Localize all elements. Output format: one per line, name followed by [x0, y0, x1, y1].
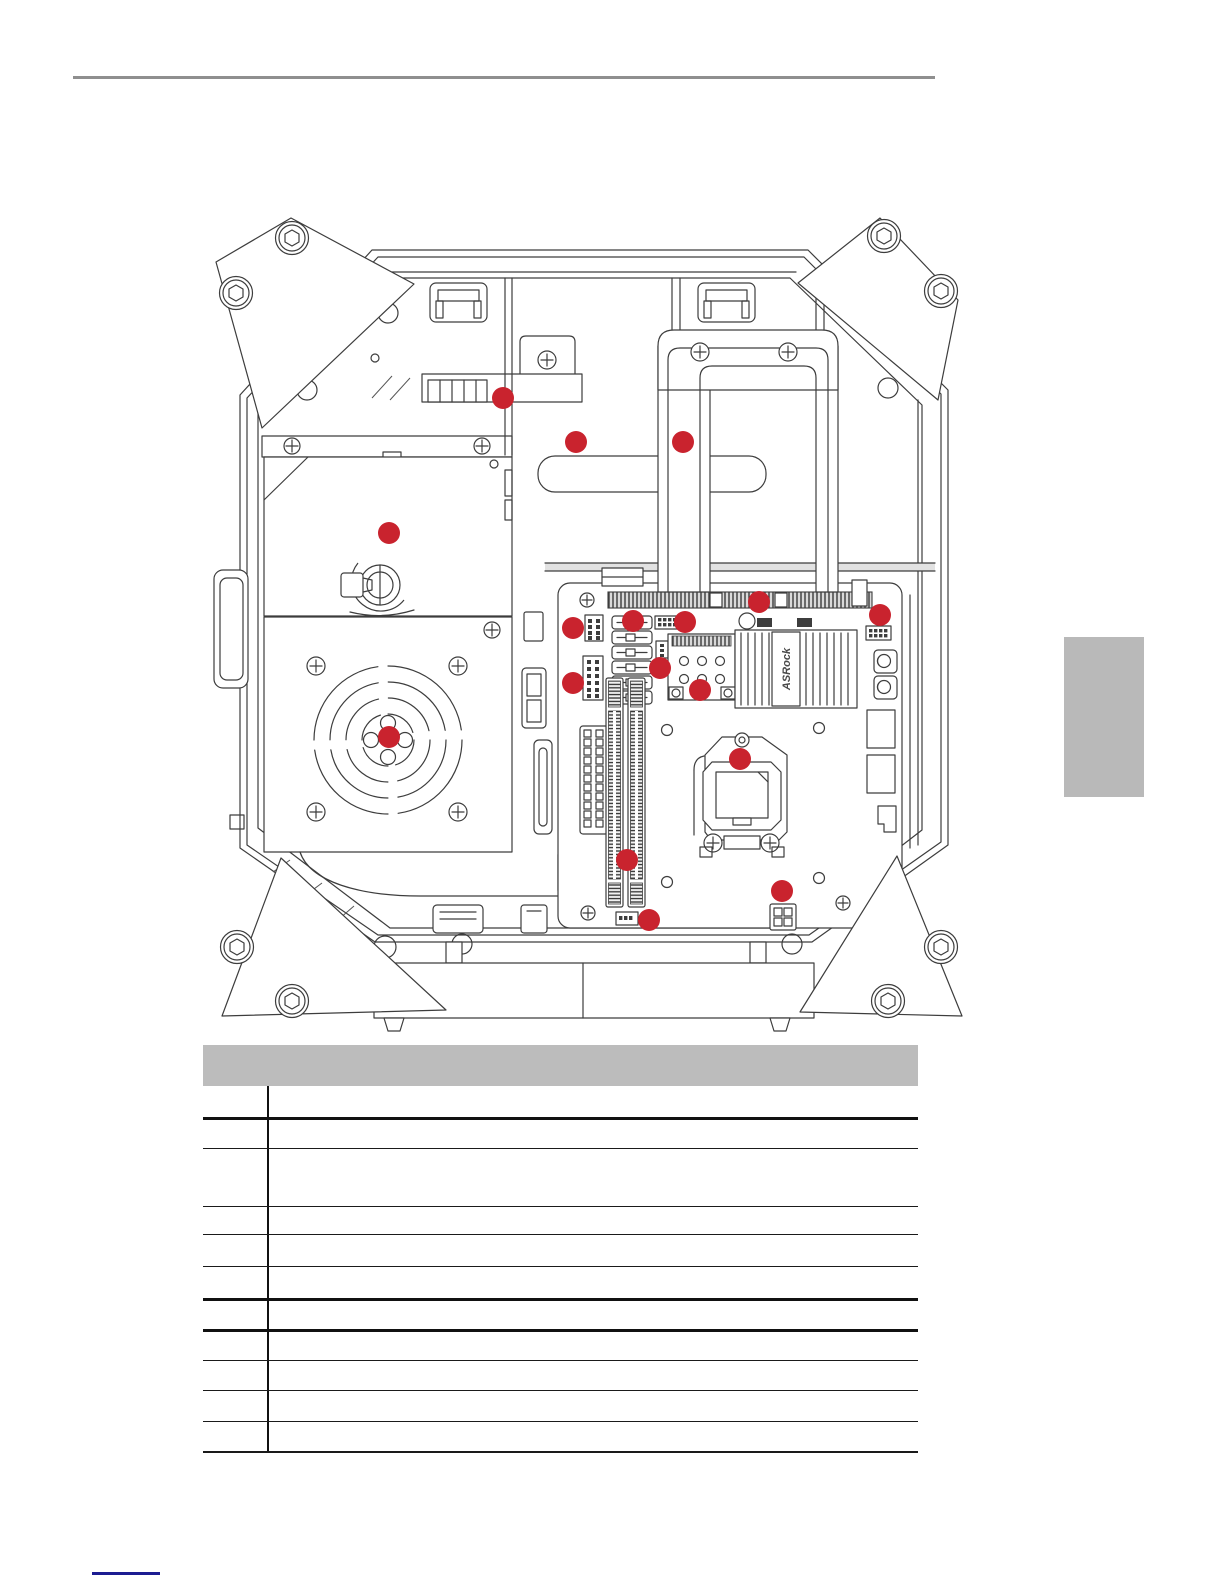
callout-dot: [674, 611, 696, 633]
row-description: [269, 1332, 918, 1360]
callout-dot: [378, 726, 400, 748]
component-table: [203, 1045, 918, 1453]
callout-dot: [562, 672, 584, 694]
table-row: [203, 1120, 918, 1149]
row-description: [269, 1149, 918, 1206]
manual-page: ASRock: [0, 0, 1224, 1584]
usb-block: [867, 710, 895, 748]
table-row: [203, 1207, 918, 1235]
row-number: [203, 1391, 269, 1421]
row-number: [203, 1120, 269, 1148]
row-number: [203, 1207, 269, 1234]
row-description: [269, 1086, 918, 1117]
small-header: [656, 641, 668, 658]
callout-dot: [869, 604, 891, 626]
atx12v-connector: [770, 904, 796, 930]
row-number: [203, 1422, 269, 1451]
bay-brackets: [522, 612, 552, 834]
fan-header: [616, 912, 638, 925]
row-number: [203, 1149, 269, 1206]
bottom-clips: [433, 905, 547, 933]
table-row: [203, 1086, 918, 1120]
row-description: [269, 1207, 918, 1234]
table-row: [203, 1391, 918, 1422]
side-latch-ear: [214, 570, 248, 829]
row-description: [269, 1120, 918, 1148]
chipset-heatsink: ASRock: [735, 630, 857, 708]
row-number: [203, 1267, 269, 1298]
heatsink-brand-text: ASRock: [781, 647, 793, 691]
callout-dot: [565, 431, 587, 453]
base-stand: [374, 942, 814, 1031]
row-number: [203, 1086, 269, 1117]
chassis-diagram: ASRock: [200, 195, 970, 1040]
callout-dot: [748, 591, 770, 613]
row-number: [203, 1235, 269, 1266]
panel-header: [583, 656, 603, 700]
row-number: [203, 1301, 269, 1329]
top-latch-right: [698, 283, 755, 322]
callout-dot: [729, 748, 751, 770]
table-row: [203, 1332, 918, 1361]
table-body: [203, 1086, 918, 1453]
table-header: [203, 1045, 918, 1086]
callout-dot: [616, 849, 638, 871]
usb-header: [585, 615, 603, 641]
rear-header: [866, 626, 891, 640]
callout-dot: [672, 431, 694, 453]
callout-dot: [378, 522, 400, 544]
table-row: [203, 1361, 918, 1391]
row-number: [203, 1332, 269, 1360]
pcie-slot: [608, 592, 872, 608]
section-tab: [1064, 637, 1144, 797]
callout-dot: [649, 657, 671, 679]
table-row: [203, 1422, 918, 1453]
row-description: [269, 1267, 918, 1298]
callout-dot: [689, 679, 711, 701]
callout-dot: [492, 387, 514, 409]
lan-block: [867, 755, 895, 793]
callout-dot: [638, 909, 660, 931]
row-description: [269, 1422, 918, 1451]
top-latch-left: [430, 283, 487, 322]
footnote-rule: [92, 1572, 160, 1575]
row-description: [269, 1301, 918, 1329]
table-row: [203, 1267, 918, 1301]
row-number: [203, 1361, 269, 1390]
page-top-rule: [73, 76, 935, 79]
table-row: [203, 1149, 918, 1207]
callout-dot: [622, 610, 644, 632]
row-description: [269, 1361, 918, 1390]
table-row: [203, 1235, 918, 1267]
bay-vent-bar: [538, 456, 766, 492]
row-description: [269, 1235, 918, 1266]
psu-unit: [264, 617, 580, 900]
table-row: [203, 1301, 918, 1332]
callout-dot: [771, 880, 793, 902]
callout-dot: [562, 617, 584, 639]
row-description: [269, 1391, 918, 1421]
